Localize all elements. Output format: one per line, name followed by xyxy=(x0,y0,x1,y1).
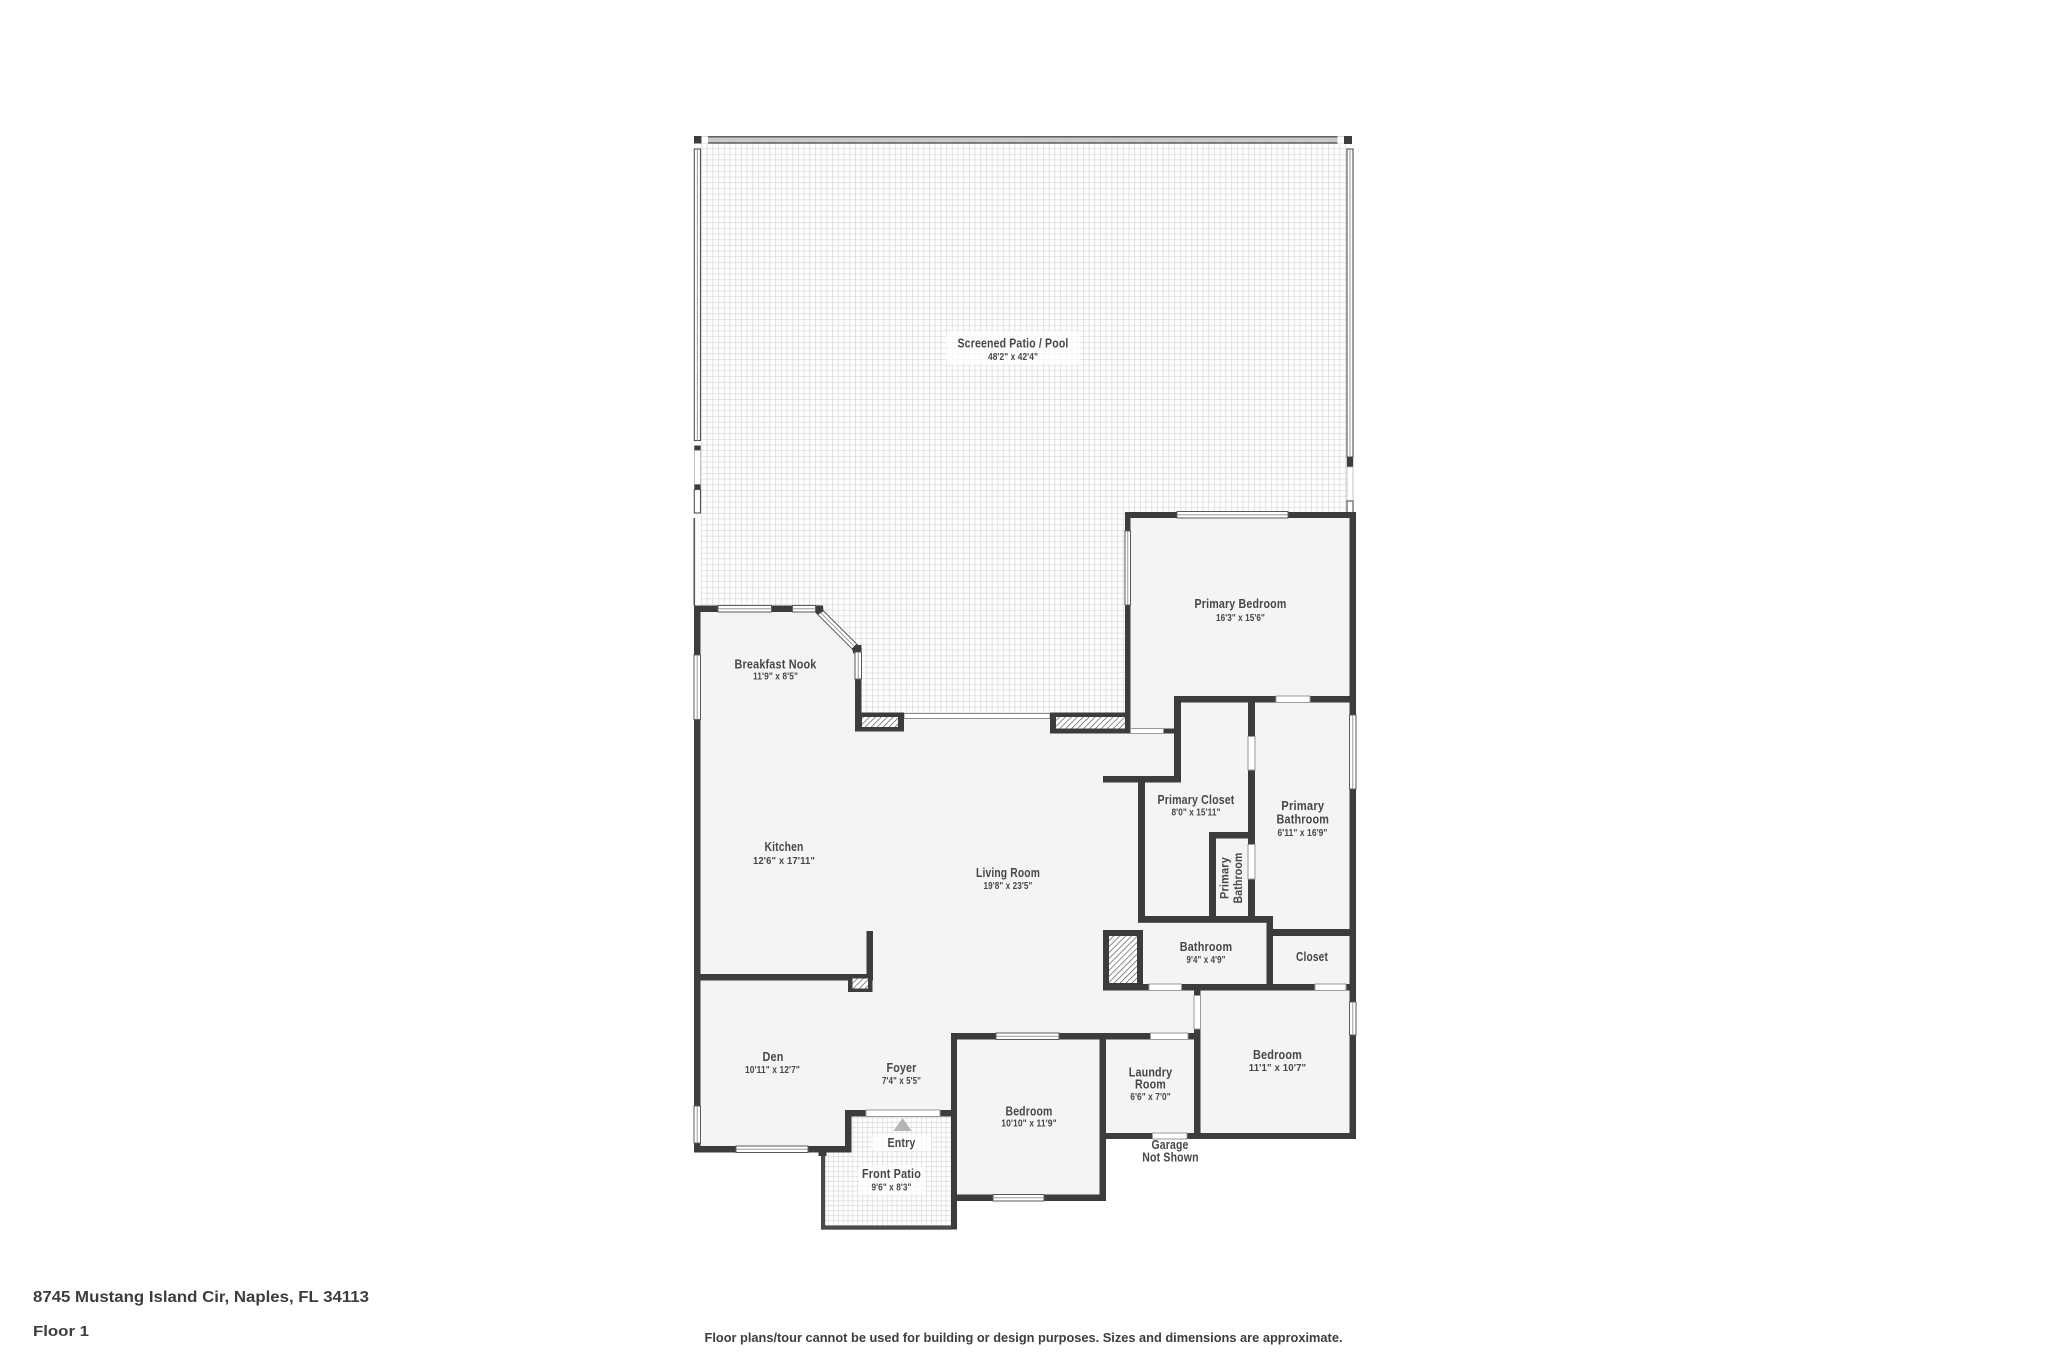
svg-text:8745 Mustang Island Cir, Naple: 8745 Mustang Island Cir, Naples, FL 3411… xyxy=(33,1289,369,1306)
svg-text:9'6" x 8'3": 9'6" x 8'3" xyxy=(872,1183,912,1194)
svg-text:Primary: Primary xyxy=(1220,857,1232,899)
svg-text:19'8" x 23'5": 19'8" x 23'5" xyxy=(984,881,1033,892)
svg-text:Bathroom: Bathroom xyxy=(1180,940,1233,954)
svg-text:7'4" x 5'5": 7'4" x 5'5" xyxy=(882,1076,921,1087)
svg-text:11'9" x 8'5": 11'9" x 8'5" xyxy=(753,672,798,683)
svg-text:10'10" x 11'9": 10'10" x 11'9" xyxy=(1001,1119,1057,1130)
svg-text:6'11" x 16'9": 6'11" x 16'9" xyxy=(1278,828,1328,839)
svg-text:Not Shown: Not Shown xyxy=(1142,1151,1199,1165)
svg-text:Screened Patio / Pool: Screened Patio / Pool xyxy=(958,337,1069,351)
svg-text:Front Patio: Front Patio xyxy=(862,1167,921,1181)
svg-text:10'11" x 12'7": 10'11" x 12'7" xyxy=(745,1065,800,1076)
svg-text:Bathroom: Bathroom xyxy=(1233,853,1245,904)
svg-text:Primary Closet: Primary Closet xyxy=(1158,793,1236,807)
svg-text:Den: Den xyxy=(763,1050,784,1064)
svg-text:9'4" x 4'9": 9'4" x 4'9" xyxy=(1187,955,1226,966)
svg-text:Living Room: Living Room xyxy=(976,866,1040,880)
svg-text:Room: Room xyxy=(1135,1078,1166,1092)
svg-text:Closet: Closet xyxy=(1296,950,1329,964)
svg-text:6'6" x 7'0": 6'6" x 7'0" xyxy=(1130,1092,1171,1103)
svg-text:Bedroom: Bedroom xyxy=(1253,1048,1302,1062)
svg-text:12'6" x 17'11": 12'6" x 17'11" xyxy=(753,856,815,867)
svg-text:8'0" x 15'11": 8'0" x 15'11" xyxy=(1172,808,1221,819)
svg-text:Kitchen: Kitchen xyxy=(765,840,804,854)
svg-text:Entry: Entry xyxy=(888,1136,916,1150)
svg-text:48'2" x 42'4": 48'2" x 42'4" xyxy=(988,352,1038,363)
svg-text:Foyer: Foyer xyxy=(887,1061,917,1075)
svg-text:Bedroom: Bedroom xyxy=(1006,1105,1053,1119)
svg-text:16'3" x 15'6": 16'3" x 15'6" xyxy=(1216,613,1265,624)
svg-text:Bathroom: Bathroom xyxy=(1277,813,1330,827)
svg-text:Floor plans/tour cannot be use: Floor plans/tour cannot be used for buil… xyxy=(705,1331,1343,1345)
svg-text:Primary Bedroom: Primary Bedroom xyxy=(1195,597,1287,611)
svg-text:Primary: Primary xyxy=(1281,799,1324,813)
svg-text:11'1" x 10'7": 11'1" x 10'7" xyxy=(1249,1063,1307,1074)
svg-text:Floor 1: Floor 1 xyxy=(33,1323,89,1340)
svg-text:Breakfast Nook: Breakfast Nook xyxy=(735,658,817,672)
